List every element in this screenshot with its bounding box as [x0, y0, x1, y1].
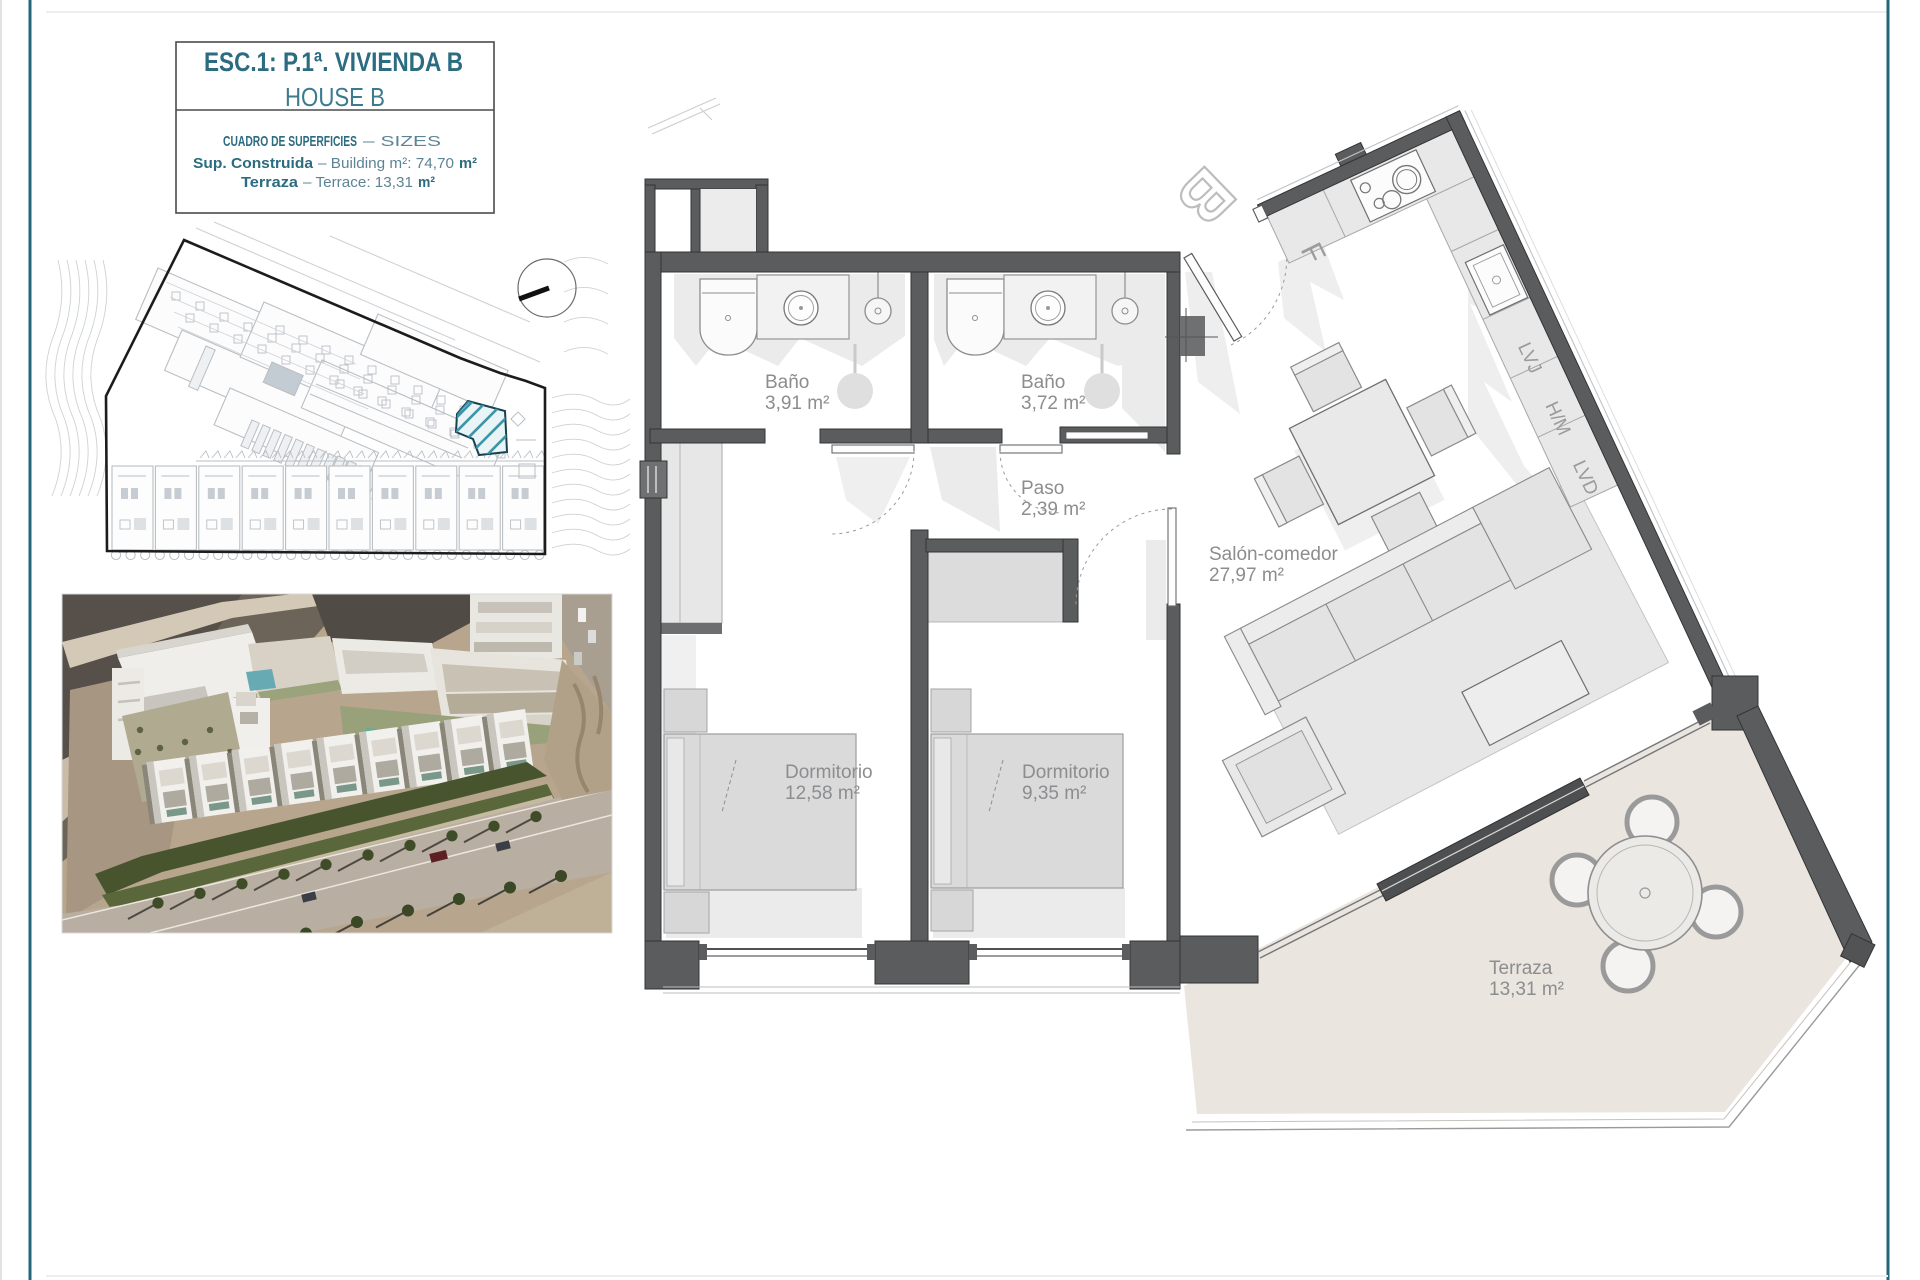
- svg-text:Terraza: Terraza: [241, 174, 299, 191]
- svg-text:m²: m²: [418, 174, 435, 191]
- svg-text:ESC.1: P.1ª. VIVIENDA B: ESC.1: P.1ª. VIVIENDA B: [204, 47, 463, 77]
- svg-text:27,97 m²: 27,97 m²: [1209, 565, 1284, 586]
- svg-text:Dormitorio: Dormitorio: [785, 762, 873, 783]
- svg-text:Baño: Baño: [1021, 372, 1065, 393]
- svg-text:– Building m²: 74,70: – Building m²: 74,70: [318, 155, 454, 172]
- svg-text:CUADRO DE SUPERFICIES: CUADRO DE SUPERFICIES: [223, 133, 357, 150]
- svg-text:Paso: Paso: [1021, 478, 1064, 499]
- svg-text:9,35 m²: 9,35 m²: [1022, 783, 1086, 804]
- svg-text:2,39 m²: 2,39 m²: [1021, 499, 1085, 520]
- svg-text:3,72 m²: 3,72 m²: [1021, 393, 1085, 414]
- svg-text:Salón-comedor: Salón-comedor: [1209, 544, 1339, 565]
- svg-text:m²: m²: [459, 155, 477, 172]
- svg-text:Sup. Construida: Sup. Construida: [193, 155, 314, 172]
- svg-text:Dormitorio: Dormitorio: [1022, 762, 1110, 783]
- svg-text:13,31 m²: 13,31 m²: [1489, 979, 1564, 1000]
- svg-text:Terraza: Terraza: [1489, 958, 1553, 979]
- svg-text:HOUSE B: HOUSE B: [285, 82, 385, 112]
- svg-text:3,91 m²: 3,91 m²: [765, 393, 829, 414]
- svg-text:Baño: Baño: [765, 372, 809, 393]
- svg-text:12,58 m²: 12,58 m²: [785, 783, 860, 804]
- svg-text:– SIZES: – SIZES: [363, 133, 441, 150]
- svg-text:– Terrace: 13,31: – Terrace: 13,31: [303, 174, 413, 191]
